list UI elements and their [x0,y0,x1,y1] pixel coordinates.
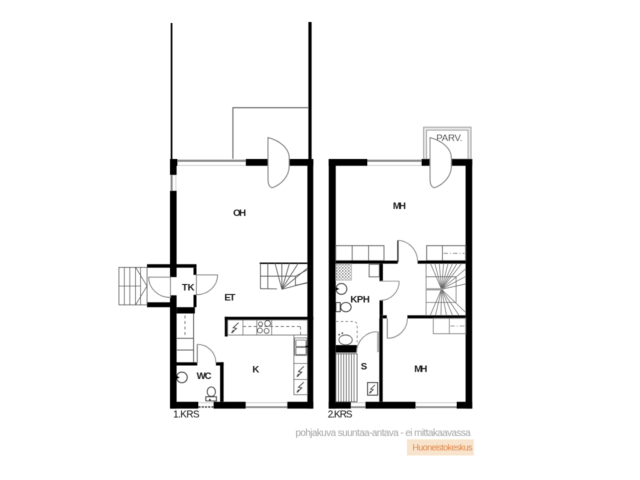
svg-text:TK: TK [182,282,195,293]
svg-text:Huoneistokeskus: Huoneistokeskus [413,443,474,453]
svg-text:S: S [361,362,368,373]
svg-text:WC: WC [197,371,212,382]
svg-text:1.KRS: 1.KRS [173,409,200,420]
svg-text:K: K [252,365,259,376]
svg-text:pohjakuva suuntaa-antava - ei: pohjakuva suuntaa-antava - ei mittakaava… [296,428,472,439]
svg-text:KPH: KPH [350,295,369,306]
svg-text:OH: OH [233,208,246,219]
svg-text:MH: MH [393,201,406,212]
svg-text:ET: ET [224,293,235,304]
svg-text:MH: MH [414,364,427,375]
svg-text:2.KRS: 2.KRS [328,409,353,420]
